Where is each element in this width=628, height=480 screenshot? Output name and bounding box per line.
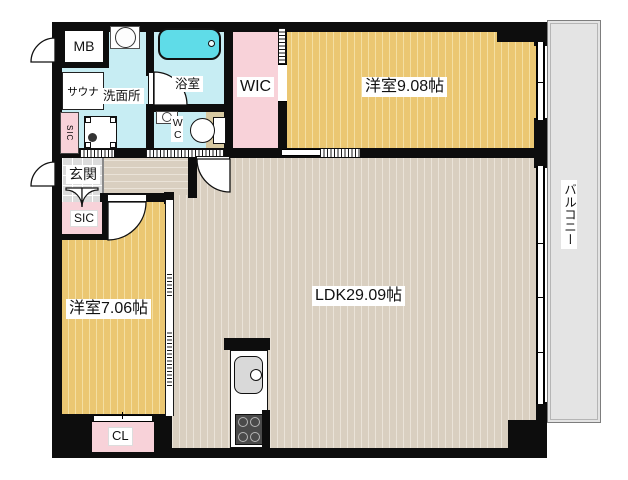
- kitchen-wall-side: [262, 410, 270, 450]
- window-mullion: [536, 297, 545, 298]
- bathtub-drain-icon: [208, 40, 215, 47]
- wall: [508, 420, 547, 458]
- hallway-floor: [100, 155, 190, 195]
- sic-side-label: SIC: [65, 125, 74, 141]
- sauna-room: サウナ: [62, 72, 104, 110]
- bedroom-left-door-leaf: [107, 194, 147, 202]
- wall: [146, 26, 154, 76]
- bedroom-top-sliding-door: [282, 149, 320, 156]
- wall: [534, 118, 547, 168]
- balcony-label: バルコニー: [561, 180, 577, 249]
- washer-corner: [110, 117, 116, 123]
- burner-icon: [250, 432, 260, 442]
- wall: [52, 22, 62, 458]
- washer-corner: [85, 142, 91, 148]
- ldk-label: LDK29.09帖: [312, 286, 405, 306]
- washer-pan-icon: [84, 116, 117, 149]
- window-mullion: [536, 352, 545, 353]
- sic-entrance-label: SIC: [70, 210, 98, 227]
- burner-icon: [238, 432, 248, 442]
- closet-door-tick: [122, 412, 123, 419]
- washer-corner: [110, 142, 116, 148]
- window-mullion: [536, 243, 545, 244]
- wic-sliding-door: [279, 28, 285, 64]
- wic-opening: [278, 64, 287, 102]
- laundry-folding-door: [80, 150, 114, 157]
- burner-icon: [238, 417, 248, 427]
- bathroom-label: 浴室: [172, 76, 203, 92]
- closet-cl-label: CL: [108, 427, 133, 446]
- bedroom-left-sliding-partition: [167, 272, 172, 296]
- washroom-label: 洗面所: [100, 88, 144, 104]
- sauna-label: サウナ: [67, 84, 99, 99]
- stove-icon: [235, 414, 263, 445]
- floor-plan: MB サウナ SIC: [0, 0, 628, 480]
- burner-icon: [250, 417, 260, 427]
- entrance-label: 玄関: [66, 166, 100, 184]
- bathroom-door-leaf: [148, 72, 154, 105]
- toilet-bowl-icon: [190, 118, 215, 143]
- bedroom-left-label: 洋室7.06帖: [66, 299, 151, 319]
- meter-box-label: MB: [73, 39, 96, 55]
- meter-box: MB: [59, 25, 109, 68]
- ldk-door-leaf: [196, 156, 230, 162]
- wic-label: WIC: [237, 77, 274, 97]
- washer-corner: [85, 117, 91, 123]
- bedroom-top-label: 洋室9.08帖: [362, 77, 447, 97]
- bedroom-top-sliding-door: [320, 149, 360, 157]
- sic-side-closet: SIC: [60, 112, 79, 154]
- closet-sliding-door: [94, 415, 152, 422]
- washbasin-icon: [115, 27, 136, 48]
- kitchen-wall-cap: [224, 338, 270, 350]
- window-mullion: [536, 82, 545, 83]
- bedroom-left-sliding-partition: [167, 330, 172, 386]
- washer-drain-icon: [88, 133, 97, 142]
- entrance-hall-divider: [102, 157, 104, 193]
- window: [536, 166, 545, 404]
- wc-label: WC: [171, 116, 183, 142]
- kitchen-faucet-icon: [250, 369, 262, 381]
- window: [536, 42, 545, 120]
